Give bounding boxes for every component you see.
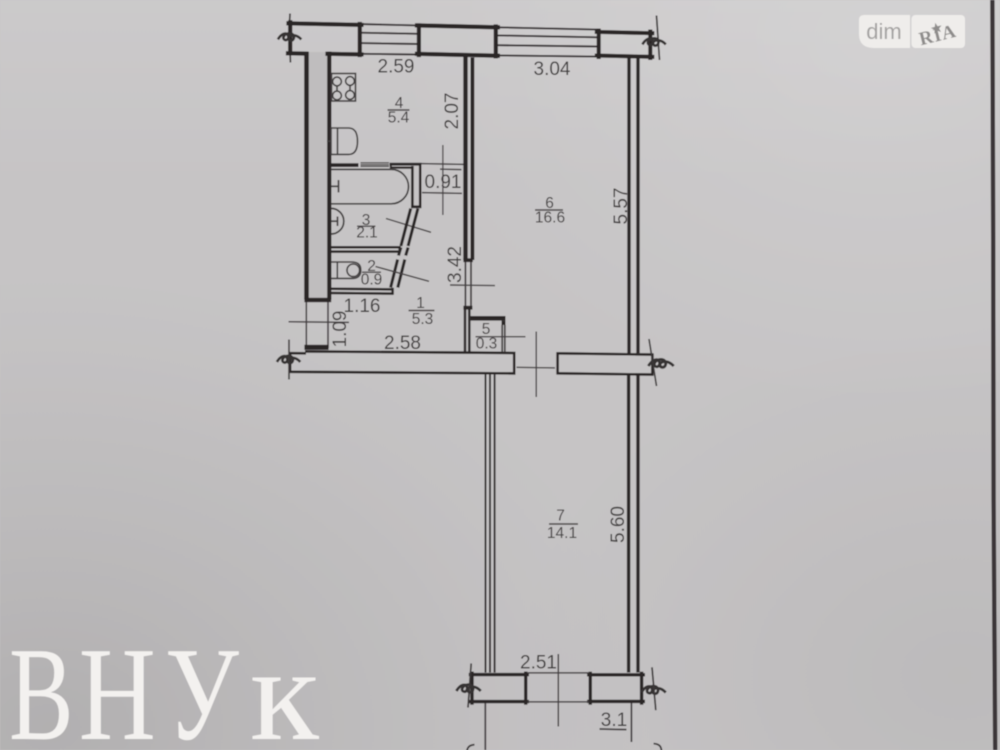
svg-text:Н: Н bbox=[79, 621, 156, 750]
svg-text:2.07: 2.07 bbox=[442, 93, 463, 130]
svg-text:3.04: 3.04 bbox=[534, 59, 571, 80]
svg-text:0.9: 0.9 bbox=[361, 272, 383, 289]
svg-text:1: 1 bbox=[416, 295, 425, 312]
svg-text:У: У bbox=[165, 620, 240, 750]
svg-text:3.42: 3.42 bbox=[445, 246, 466, 283]
svg-text:2.59: 2.59 bbox=[378, 57, 415, 78]
svg-text:2.51: 2.51 bbox=[520, 653, 557, 674]
svg-text:dim: dim bbox=[866, 19, 901, 44]
svg-text:7: 7 bbox=[556, 508, 565, 525]
svg-text:В: В bbox=[9, 621, 73, 750]
svg-text:5.60: 5.60 bbox=[608, 506, 629, 543]
svg-text:16.6: 16.6 bbox=[535, 210, 565, 227]
svg-text:14.1: 14.1 bbox=[547, 525, 577, 542]
svg-text:5.4: 5.4 bbox=[388, 110, 410, 127]
svg-text:1.09: 1.09 bbox=[330, 311, 351, 348]
svg-text:0.3: 0.3 bbox=[476, 336, 498, 353]
svg-text:к: к bbox=[250, 620, 320, 750]
svg-text:3.1: 3.1 bbox=[601, 710, 627, 731]
svg-text:5.3: 5.3 bbox=[412, 311, 434, 328]
svg-text:2.1: 2.1 bbox=[356, 225, 378, 242]
